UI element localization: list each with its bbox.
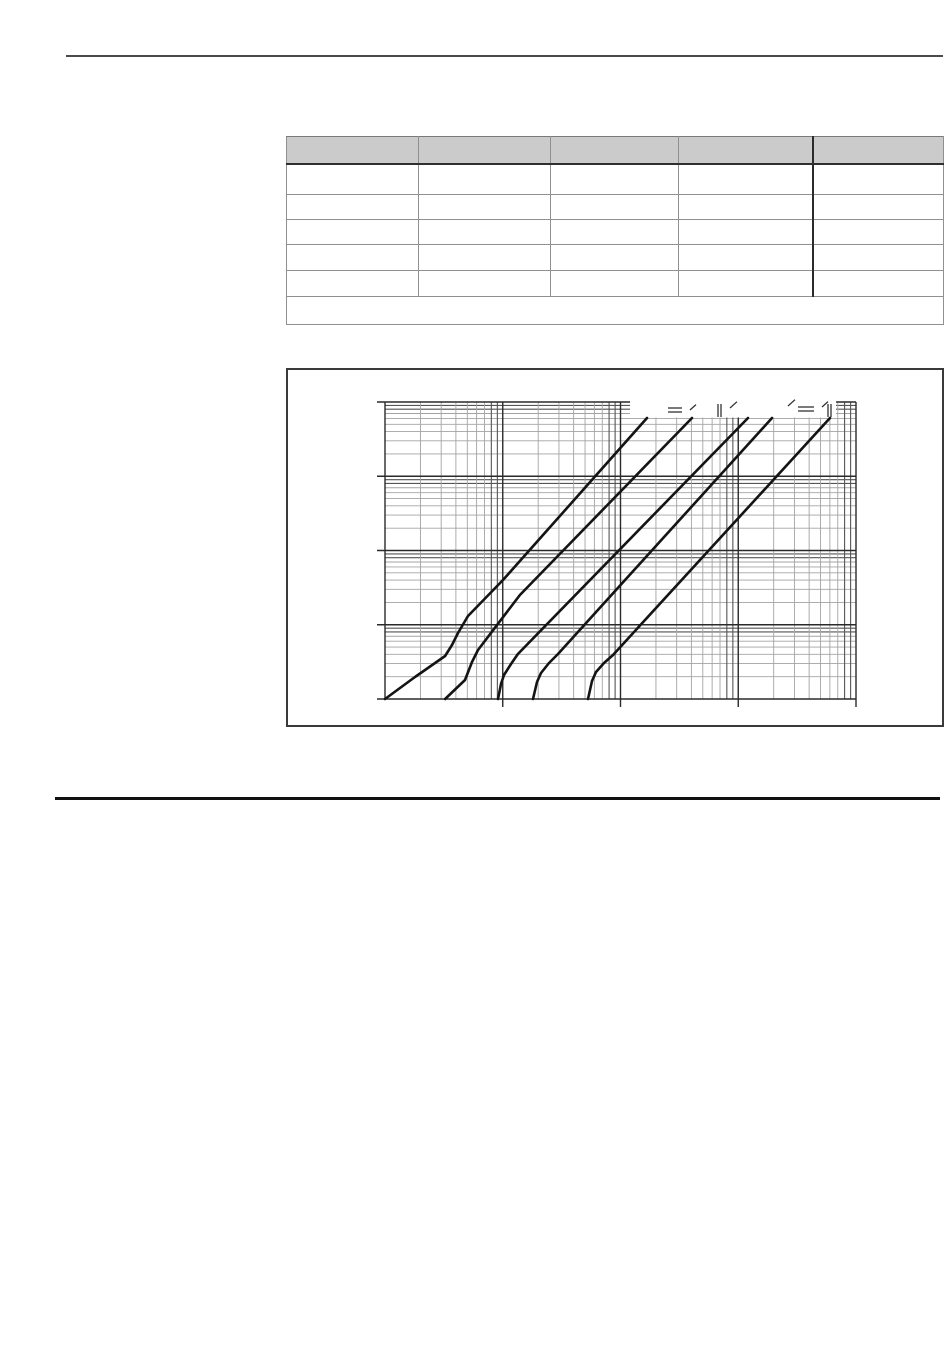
table-cell	[551, 245, 679, 271]
table-header-cell	[813, 137, 944, 165]
table-cell	[813, 195, 944, 220]
table-row	[287, 164, 944, 195]
table-cell	[679, 271, 813, 297]
page: { "colors": { "rule_top": "#4a4a4a", "ru…	[0, 0, 950, 1370]
table-cell	[551, 164, 679, 195]
table-row	[287, 245, 944, 271]
table-cell	[287, 245, 419, 271]
table-header-cell	[679, 137, 813, 165]
top-divider	[66, 55, 943, 57]
table-cell	[551, 195, 679, 220]
table-header-row	[287, 137, 944, 165]
table-cell	[679, 220, 813, 245]
table-header-cell	[419, 137, 551, 165]
chart-curve-curve-3	[498, 418, 748, 699]
table-footer-cell	[287, 297, 944, 325]
table-footer-row	[287, 297, 944, 325]
table-cell	[287, 164, 419, 195]
table-cell	[813, 245, 944, 271]
chart-curve-curve-2	[445, 418, 692, 699]
table-cell	[679, 164, 813, 195]
table-cell	[419, 164, 551, 195]
table-cell	[679, 245, 813, 271]
log-log-chart-svg	[286, 368, 944, 727]
chart-curve-curve-5	[588, 418, 830, 699]
table-cell	[813, 220, 944, 245]
table-row	[287, 271, 944, 297]
section-divider	[55, 797, 940, 800]
figure-box	[286, 368, 944, 727]
table-cell	[419, 195, 551, 220]
table-row	[287, 195, 944, 220]
table-cell	[813, 164, 944, 195]
table-cell	[551, 220, 679, 245]
table-header-cell	[551, 137, 679, 165]
table-cell	[419, 271, 551, 297]
data-table	[286, 136, 944, 325]
table-cell	[287, 195, 419, 220]
table-cell	[419, 245, 551, 271]
table-cell	[419, 220, 551, 245]
table-cell	[287, 271, 419, 297]
table-cell	[287, 220, 419, 245]
table-cell	[679, 195, 813, 220]
table-cell	[551, 271, 679, 297]
table-cell	[813, 271, 944, 297]
table-row	[287, 220, 944, 245]
table-header-cell	[287, 137, 419, 165]
